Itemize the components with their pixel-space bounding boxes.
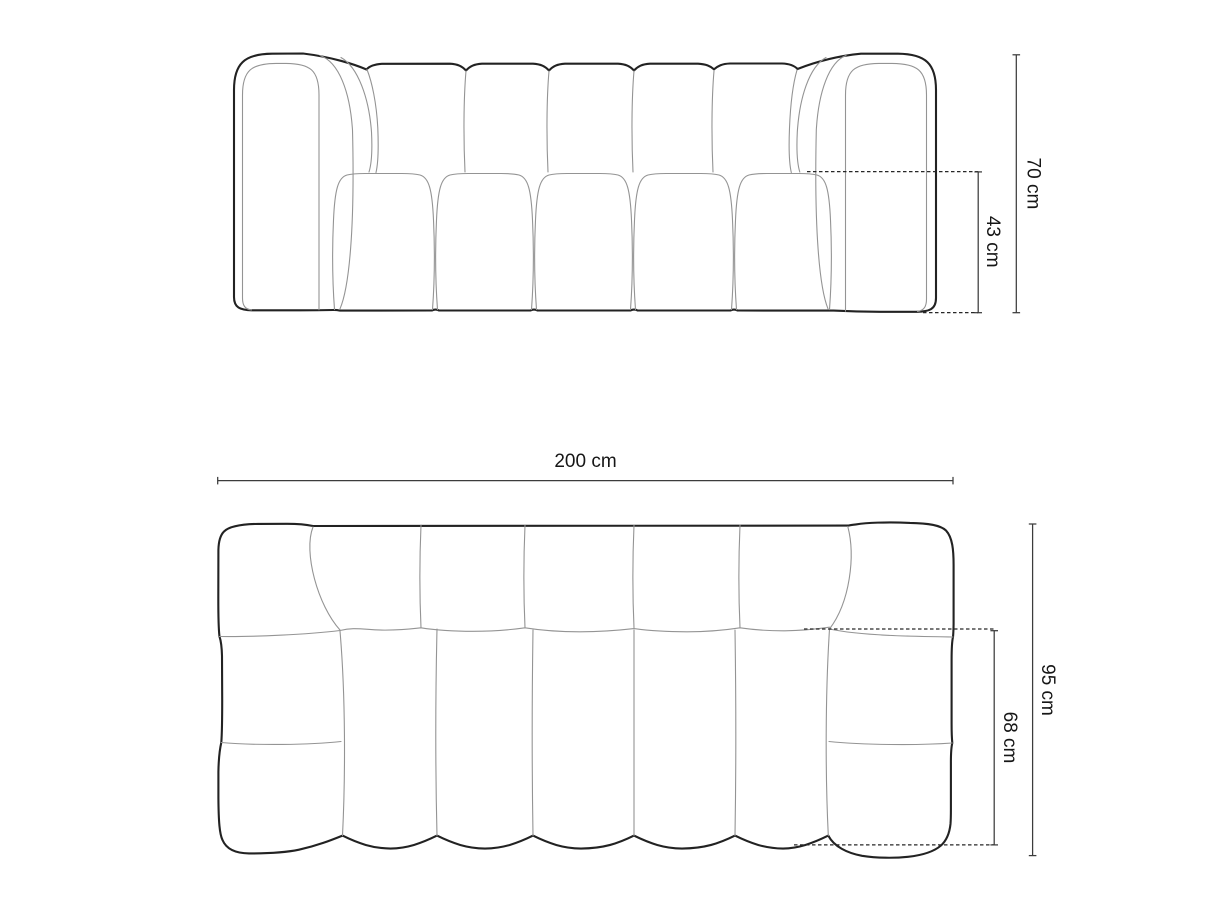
svg-text:95 cm: 95 cm xyxy=(1037,664,1058,716)
svg-text:43 cm: 43 cm xyxy=(982,216,1003,268)
svg-text:68 cm: 68 cm xyxy=(999,712,1020,764)
svg-text:70 cm: 70 cm xyxy=(1022,158,1043,210)
svg-text:200 cm: 200 cm xyxy=(554,451,616,472)
